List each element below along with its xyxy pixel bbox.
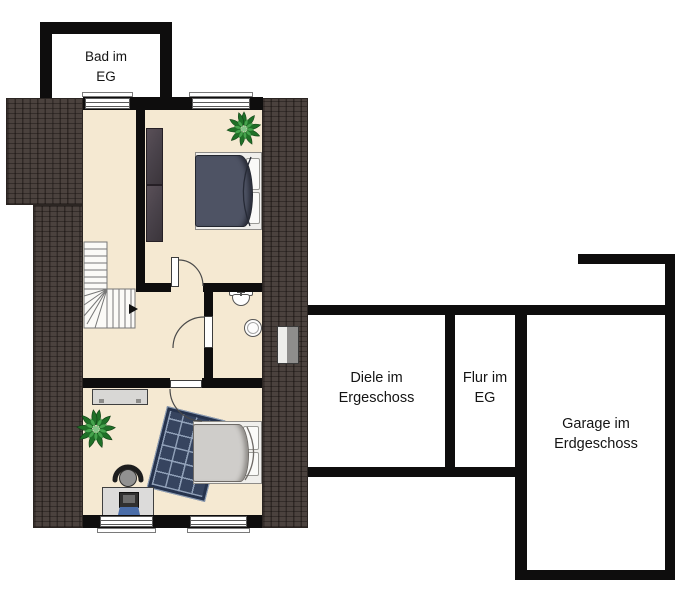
floor-plan: Bad im EG [0,0,683,600]
bed-1-fold [243,157,251,226]
plant-icon-bedroom [227,112,261,146]
office-chair-icon [115,467,141,487]
plant-icon-office [76,409,115,448]
bed-2-fold [245,427,254,480]
door-swing-arcs [170,260,204,421]
plan-symbol-overlay [0,0,683,600]
staircase [84,242,135,328]
door-arc-office [170,389,202,421]
door-arc-bedroom [179,260,203,286]
door-arc-bathroom [173,317,204,348]
duvet-fold-lines [243,157,253,480]
